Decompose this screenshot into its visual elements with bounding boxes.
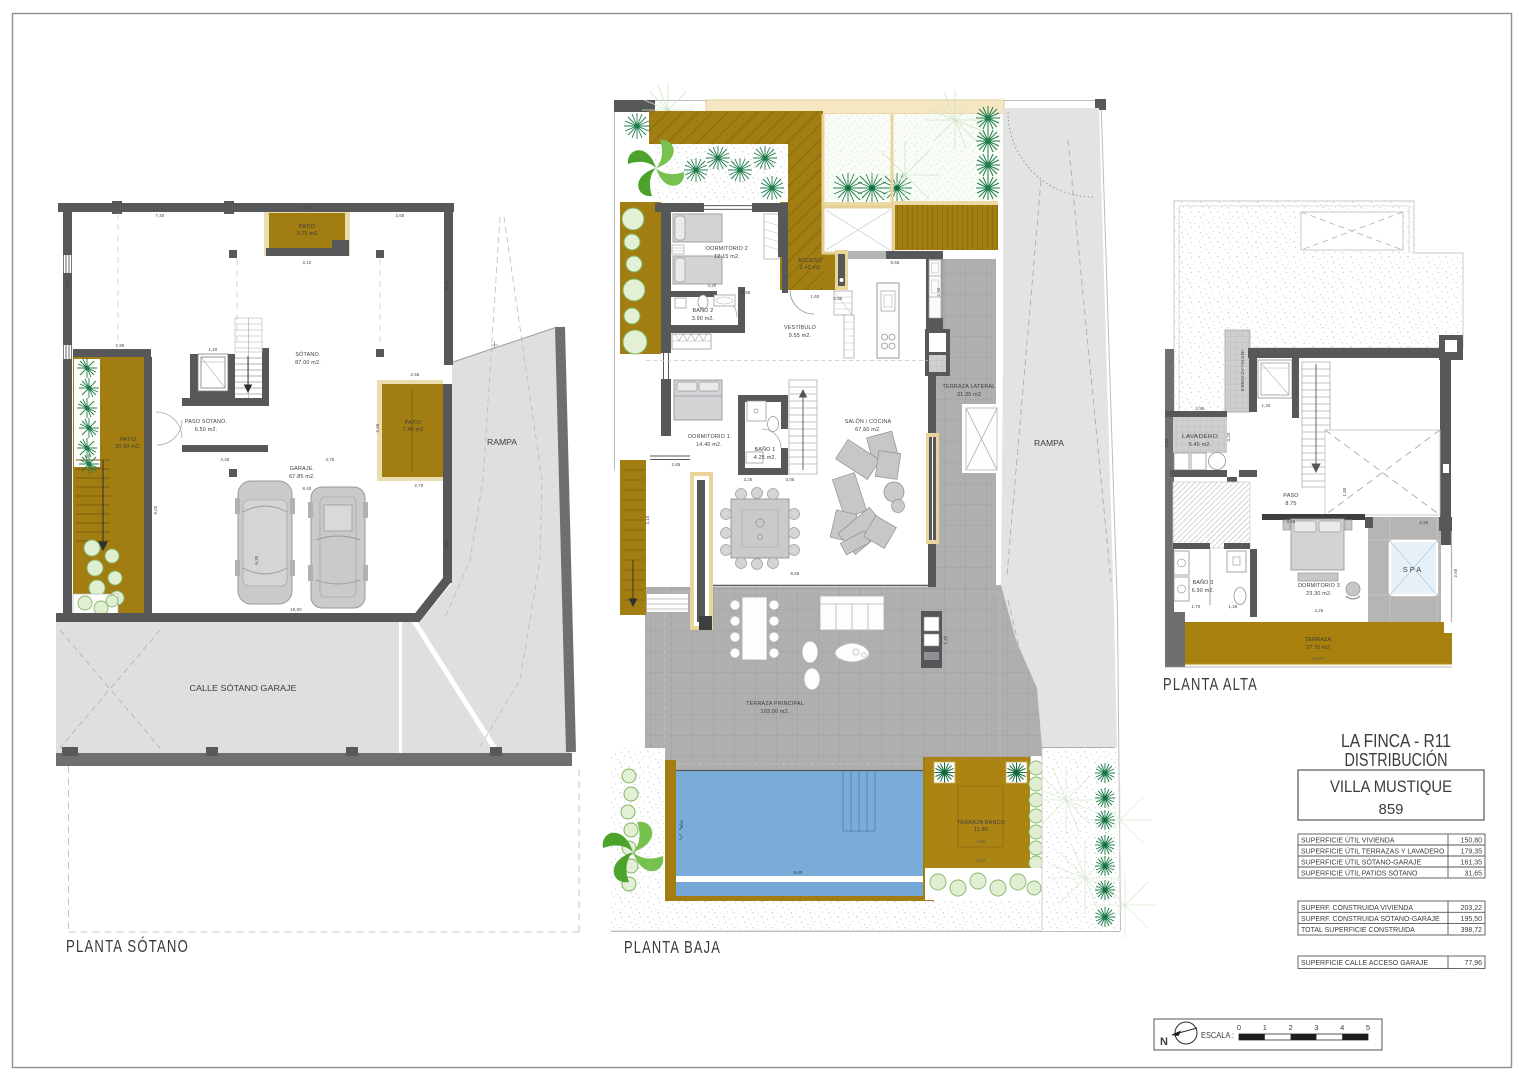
svg-text:SÓTANO.: SÓTANO. — [295, 351, 320, 358]
svg-text:103.00 m2.: 103.00 m2. — [761, 709, 790, 715]
svg-text:LAVADERO: LAVADERO — [1182, 434, 1218, 440]
svg-text:4,10: 4,10 — [645, 515, 650, 524]
svg-text:SUPERFICIE ÚTIL TERRAZAS Y LAV: SUPERFICIE ÚTIL TERRAZAS Y LAVADERO — [1301, 847, 1445, 856]
svg-text:67.60 m2.: 67.60 m2. — [855, 427, 881, 433]
svg-text:SUPERFICIE ÚTIL VIVIENDA: SUPERFICIE ÚTIL VIVIENDA — [1301, 836, 1395, 845]
svg-text:2.42 m2: 2.42 m2 — [800, 265, 821, 271]
svg-text:3.75 m2: 3.75 m2 — [297, 231, 318, 237]
svg-text:ACCESO: ACCESO — [798, 258, 822, 264]
svg-text:PATIO: PATIO — [120, 437, 136, 443]
svg-text:9,00: 9,00 — [153, 505, 158, 514]
svg-text:N: N — [1160, 1036, 1168, 1048]
svg-text:1,80: 1,80 — [1342, 487, 1347, 496]
svg-text:31.35 m2: 31.35 m2 — [957, 392, 981, 398]
svg-text:12.15 m2.: 12.15 m2. — [714, 254, 740, 260]
svg-text:179,35: 179,35 — [1461, 849, 1483, 856]
svg-text:3,10: 3,10 — [303, 260, 312, 265]
svg-text:203,22: 203,22 — [1461, 905, 1483, 912]
svg-text:161,35: 161,35 — [1461, 860, 1483, 867]
svg-text:2,95: 2,95 — [1196, 406, 1205, 411]
svg-text:1: 1 — [1263, 1023, 1267, 1032]
svg-text:BAÑO 1: BAÑO 1 — [755, 446, 776, 453]
svg-text:31,65: 31,65 — [1464, 871, 1482, 878]
svg-text:TOTAL SUPERFICIE CONSTRUIDA: TOTAL SUPERFICIE CONSTRUIDA — [1301, 927, 1415, 934]
svg-text:1,80: 1,80 — [977, 839, 986, 844]
svg-text:87.00 m2.: 87.00 m2. — [295, 360, 321, 366]
svg-text:1,60: 1,60 — [811, 294, 820, 299]
svg-text:PLANTA BAJA: PLANTA BAJA — [624, 937, 721, 957]
svg-text:8,65: 8,65 — [791, 571, 800, 576]
svg-text:195,50: 195,50 — [1461, 916, 1483, 923]
svg-text:4: 4 — [1340, 1023, 1344, 1032]
svg-text:0: 0 — [1237, 1023, 1241, 1032]
svg-text:20.50 m2.: 20.50 m2. — [115, 444, 141, 450]
svg-text:5.45 m2.: 5.45 m2. — [1189, 442, 1212, 448]
svg-text:27.75 m2: 27.75 m2 — [1306, 645, 1330, 651]
svg-text:0,50: 0,50 — [834, 296, 843, 301]
svg-text:SPA: SPA — [1403, 565, 1423, 574]
svg-text:4,45: 4,45 — [1287, 519, 1296, 524]
svg-text:VILLA MUSTIQUE: VILLA MUSTIQUE — [1330, 778, 1452, 796]
svg-text:150,80: 150,80 — [1461, 838, 1483, 845]
svg-text:11.80: 11.80 — [974, 827, 988, 833]
svg-text:4,30: 4,30 — [221, 457, 230, 462]
svg-text:TERRAZA PRINCIPAL: TERRAZA PRINCIPAL — [746, 701, 804, 707]
svg-text:3,20: 3,20 — [1226, 432, 1231, 441]
svg-text:3,40: 3,40 — [977, 858, 986, 863]
svg-text:PLANTA ALTA: PLANTA ALTA — [1163, 674, 1258, 694]
svg-text:8.75: 8.75 — [1285, 501, 1296, 507]
svg-text:398,72: 398,72 — [1461, 927, 1483, 934]
svg-text:DORMITORIO 1: DORMITORIO 1 — [688, 434, 730, 440]
svg-text:859: 859 — [1379, 801, 1404, 818]
svg-text:1,25: 1,25 — [1229, 604, 1238, 609]
svg-text:TERRAZA: TERRAZA — [1305, 637, 1332, 643]
svg-text:2: 2 — [1289, 1023, 1293, 1032]
svg-text:BAÑO 3: BAÑO 3 — [1193, 579, 1214, 586]
svg-text:DORMITORIO 2: DORMITORIO 2 — [706, 246, 748, 252]
svg-text:GARAJE.: GARAJE. — [290, 466, 314, 472]
svg-text:ESCALA :: ESCALA : — [1201, 1030, 1234, 1040]
svg-text:7.40 m2: 7.40 m2 — [403, 427, 424, 433]
svg-text:6.90 m2.: 6.90 m2. — [1192, 588, 1215, 594]
svg-text:7,40: 7,40 — [156, 213, 165, 218]
svg-text:TERRAZA LATERAL: TERRAZA LATERAL — [943, 384, 996, 390]
svg-text:6,35: 6,35 — [444, 280, 449, 289]
svg-text:3,95: 3,95 — [444, 540, 449, 549]
svg-text:8,65: 8,65 — [891, 260, 900, 265]
svg-text:INSTALACIONES: INSTALACIONES — [1240, 350, 1245, 392]
svg-text:8,40: 8,40 — [303, 486, 312, 491]
svg-text:10,20: 10,20 — [1312, 656, 1324, 661]
svg-text:9,60: 9,60 — [794, 870, 803, 875]
svg-text:3,25: 3,25 — [744, 477, 753, 482]
svg-text:CALLE SÓTANO GARAJE: CALLE SÓTANO GARAJE — [190, 683, 297, 693]
svg-text:10,00: 10,00 — [290, 607, 302, 612]
svg-text:1,20: 1,20 — [943, 635, 948, 644]
svg-text:SUPERFICIE CALLE ACCESO GARAJE: SUPERFICIE CALLE ACCESO GARAJE — [1301, 960, 1429, 967]
svg-text:RAMPA: RAMPA — [1034, 439, 1065, 448]
svg-text:1,70: 1,70 — [1192, 604, 1201, 609]
svg-text:5,20: 5,20 — [65, 279, 70, 288]
svg-text:PASO SÓTANO.: PASO SÓTANO. — [185, 418, 227, 425]
svg-text:2,40: 2,40 — [936, 287, 941, 296]
svg-text:2,45: 2,45 — [375, 423, 380, 432]
svg-text:77,96: 77,96 — [1464, 960, 1482, 967]
svg-text:2,95: 2,95 — [116, 343, 125, 348]
svg-text:RAMPA: RAMPA — [487, 438, 518, 447]
svg-text:TERRAZA BANCO: TERRAZA BANCO — [957, 820, 1005, 826]
svg-text:5: 5 — [1366, 1023, 1370, 1032]
svg-text:SALÓN / COCINA: SALÓN / COCINA — [845, 418, 892, 425]
svg-text:4,25: 4,25 — [1315, 608, 1324, 613]
svg-text:9.55 m2.: 9.55 m2. — [789, 333, 812, 339]
svg-text:6,30: 6,30 — [254, 555, 259, 564]
svg-text:4,30: 4,30 — [679, 819, 684, 828]
svg-text:2,30: 2,30 — [303, 205, 312, 210]
svg-text:2,55: 2,55 — [411, 372, 420, 377]
svg-text:PATIO: PATIO — [405, 420, 421, 426]
svg-text:14.40 m2.: 14.40 m2. — [696, 442, 722, 448]
svg-text:2,95: 2,95 — [1277, 515, 1286, 520]
svg-text:PLANTA SÓTANO: PLANTA SÓTANO — [66, 935, 189, 956]
svg-text:SUPERF. CONSTRUIDA SÓTANO-GARA: SUPERF. CONSTRUIDA SÓTANO-GARAJE — [1301, 914, 1440, 923]
svg-text:3,55: 3,55 — [742, 290, 751, 295]
svg-text:3: 3 — [1314, 1023, 1318, 1032]
svg-text:2,70: 2,70 — [415, 483, 424, 488]
svg-text:4,75: 4,75 — [326, 457, 335, 462]
svg-text:3.90 m2.: 3.90 m2. — [692, 316, 715, 322]
svg-text:VESTÍBULO: VESTÍBULO — [784, 324, 816, 331]
svg-text:4,20: 4,20 — [708, 283, 717, 288]
svg-text:DISTRIBUCIÓN: DISTRIBUCIÓN — [1345, 749, 1448, 770]
svg-text:PATIO: PATIO — [299, 224, 315, 230]
svg-text:2,50: 2,50 — [1420, 520, 1429, 525]
svg-text:6.50 m2.: 6.50 m2. — [195, 427, 218, 433]
svg-text:67.85 m2.: 67.85 m2. — [289, 474, 315, 480]
svg-text:SUPERF. CONSTRUIDA VIVIENDA: SUPERF. CONSTRUIDA VIVIENDA — [1301, 905, 1413, 912]
svg-text:BAÑO 2: BAÑO 2 — [693, 307, 714, 314]
svg-text:3,65: 3,65 — [396, 213, 405, 218]
svg-text:1,40: 1,40 — [1262, 403, 1271, 408]
svg-text:23.30 m2.: 23.30 m2. — [1306, 591, 1332, 597]
svg-text:SUPERFICIE ÚTIL PATIOS SÓTANO: SUPERFICIE ÚTIL PATIOS SÓTANO — [1301, 869, 1418, 878]
svg-text:2,65: 2,65 — [672, 462, 681, 467]
svg-text:LA FINCA - R11: LA FINCA - R11 — [1341, 731, 1451, 751]
svg-text:DORMITORIO 3: DORMITORIO 3 — [1298, 583, 1340, 589]
svg-text:2,65: 2,65 — [1453, 568, 1458, 577]
svg-text:2,20: 2,20 — [1164, 438, 1169, 447]
svg-text:PASO: PASO — [1283, 493, 1298, 499]
svg-text:SUPERFICIE ÚTIL SÓTANO-GARAJE: SUPERFICIE ÚTIL SÓTANO-GARAJE — [1301, 858, 1422, 867]
svg-text:1,40: 1,40 — [209, 347, 218, 352]
svg-text:4.25 m2.: 4.25 m2. — [754, 455, 777, 461]
svg-text:3,05: 3,05 — [786, 477, 795, 482]
